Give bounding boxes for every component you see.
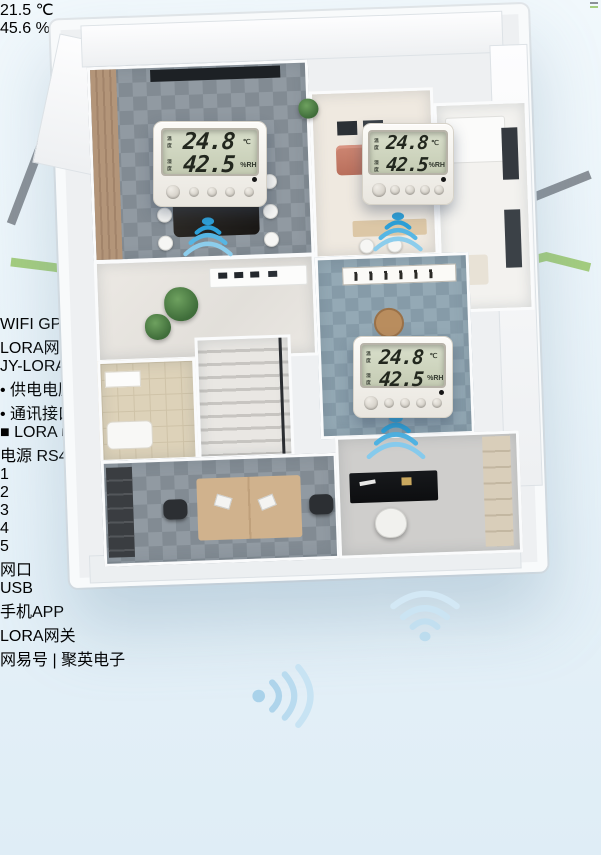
watermark-divider: | (52, 652, 56, 669)
port-label-usb: USB (0, 580, 33, 597)
temp-value: 24.8 (385, 134, 428, 153)
chair (158, 235, 174, 251)
temp-label: 温度 (374, 137, 380, 150)
wifi-icon (382, 580, 468, 642)
temp-humidity-sensor-1: 温度 24.8 ℃ 湿度 42.5 %RH (153, 121, 267, 207)
sensor-led (439, 390, 444, 395)
sensor-led (441, 177, 446, 182)
app-humidity-unit: % (36, 20, 50, 37)
wall-art (337, 121, 357, 136)
temp-value: 24.8 (379, 347, 425, 367)
tv-panel (150, 66, 280, 83)
sensor-button (390, 185, 400, 195)
laptop (214, 494, 233, 510)
sensor-button (434, 185, 444, 195)
humidity-unit: %RH (240, 162, 253, 169)
desk-lamp (401, 477, 411, 485)
bathtub (106, 420, 153, 450)
legend-series-2 (590, 6, 598, 8)
executive-desk (349, 470, 438, 503)
sensor-button (166, 185, 180, 199)
humidity-label: 湿度 (167, 159, 173, 172)
sensor-button (364, 396, 378, 410)
wifi-ripple-icon (182, 212, 234, 260)
app-humidity-value: 45.6 (0, 20, 31, 37)
sensor-buttons (369, 181, 446, 200)
round-table (373, 307, 404, 338)
plant (164, 287, 199, 322)
house-floorplan (50, 4, 548, 588)
plant (145, 313, 172, 340)
monitor (234, 272, 243, 278)
bookshelf (106, 467, 135, 558)
bed (445, 116, 507, 164)
chair (157, 207, 173, 223)
humidity-label: 湿度 (374, 159, 380, 172)
monitor (250, 271, 259, 277)
bathroom (97, 358, 199, 463)
temp-label: 温度 (366, 350, 372, 363)
sensor-button (225, 187, 235, 197)
humidity-value: 42.5 (182, 154, 235, 177)
chair (264, 232, 280, 248)
wifi-ripple-icon (372, 205, 424, 257)
sensor-lcd: 温度 24.8 ℃ 湿度 42.5 %RH (161, 128, 260, 176)
port-label-ethernet: 网口 (0, 562, 32, 579)
office-chair (309, 494, 334, 515)
sensor-buttons (162, 182, 258, 202)
executive-chair (374, 507, 407, 538)
sink-counter (105, 371, 142, 388)
sensor-button (416, 398, 426, 408)
sensor-lcd: 温度 24.8 ℃ 湿度 42.5 %RH (360, 343, 446, 389)
window-frame (501, 127, 519, 180)
hand-finger (211, 728, 270, 769)
humidity-unit: %RH (427, 375, 440, 382)
chair (263, 204, 279, 220)
sensor-button (207, 187, 217, 197)
temp-unit: ℃ (240, 139, 253, 146)
window-frame (504, 209, 522, 268)
sensor-button (420, 185, 430, 195)
sensor-buttons (361, 394, 445, 413)
caption-phone-app: 手机APP (0, 598, 601, 622)
sensor-button (372, 183, 386, 197)
sensor-button (189, 187, 199, 197)
watermark-name: 聚英电子 (61, 652, 125, 669)
stair-railing (278, 338, 285, 454)
temp-unit: ℃ (429, 140, 442, 147)
reception-desk (209, 265, 308, 288)
humidity-label: 湿度 (366, 372, 372, 385)
temp-label: 温度 (167, 136, 173, 149)
sensor-button (432, 398, 442, 408)
humidity-unit: %RH (429, 162, 442, 169)
temp-value: 24.8 (182, 131, 235, 154)
room-office (101, 453, 341, 567)
watermark-brand: 网易号 (0, 652, 48, 669)
monitor (268, 271, 277, 277)
temp-humidity-sensor-3: 温度 24.8 ℃ 湿度 42.5 %RH (353, 336, 453, 418)
humidity-value: 42.5 (385, 156, 428, 175)
staircase (194, 334, 294, 459)
papers (359, 479, 375, 486)
office-chair (163, 499, 188, 520)
sensor-button (244, 187, 254, 197)
sensor-button (400, 398, 410, 408)
monitor (218, 272, 227, 278)
temp-unit: ℃ (427, 353, 440, 360)
sensor-button (405, 185, 415, 195)
display-shelf (482, 436, 514, 547)
caption-lora-gateway: LORA网关 (0, 622, 601, 646)
app-temp-unit: ℃ (36, 2, 54, 19)
double-desk (196, 475, 302, 541)
humidity-value: 42.5 (379, 369, 425, 389)
port-label-power: 电源 (0, 448, 32, 465)
temp-humidity-sensor-2: 温度 24.8 ℃ 湿度 42.5 %RH (362, 123, 454, 205)
sensor-button (384, 398, 394, 408)
plant (298, 98, 319, 119)
laptop (258, 494, 277, 511)
sensor-lcd: 温度 24.8 ℃ 湿度 42.5 %RH (368, 130, 447, 176)
promo-scene: 温度 24.8 ℃ 湿度 42.5 %RH 温度 24.8 ℃ 湿度 4 (0, 0, 601, 855)
legend-series-1 (590, 2, 598, 4)
app-temp-value: 21.5 (0, 2, 31, 19)
calligraphy-banner (342, 264, 457, 286)
wood-slat-wall (90, 69, 123, 260)
antenna-label-wifi: WIFI (0, 316, 34, 333)
